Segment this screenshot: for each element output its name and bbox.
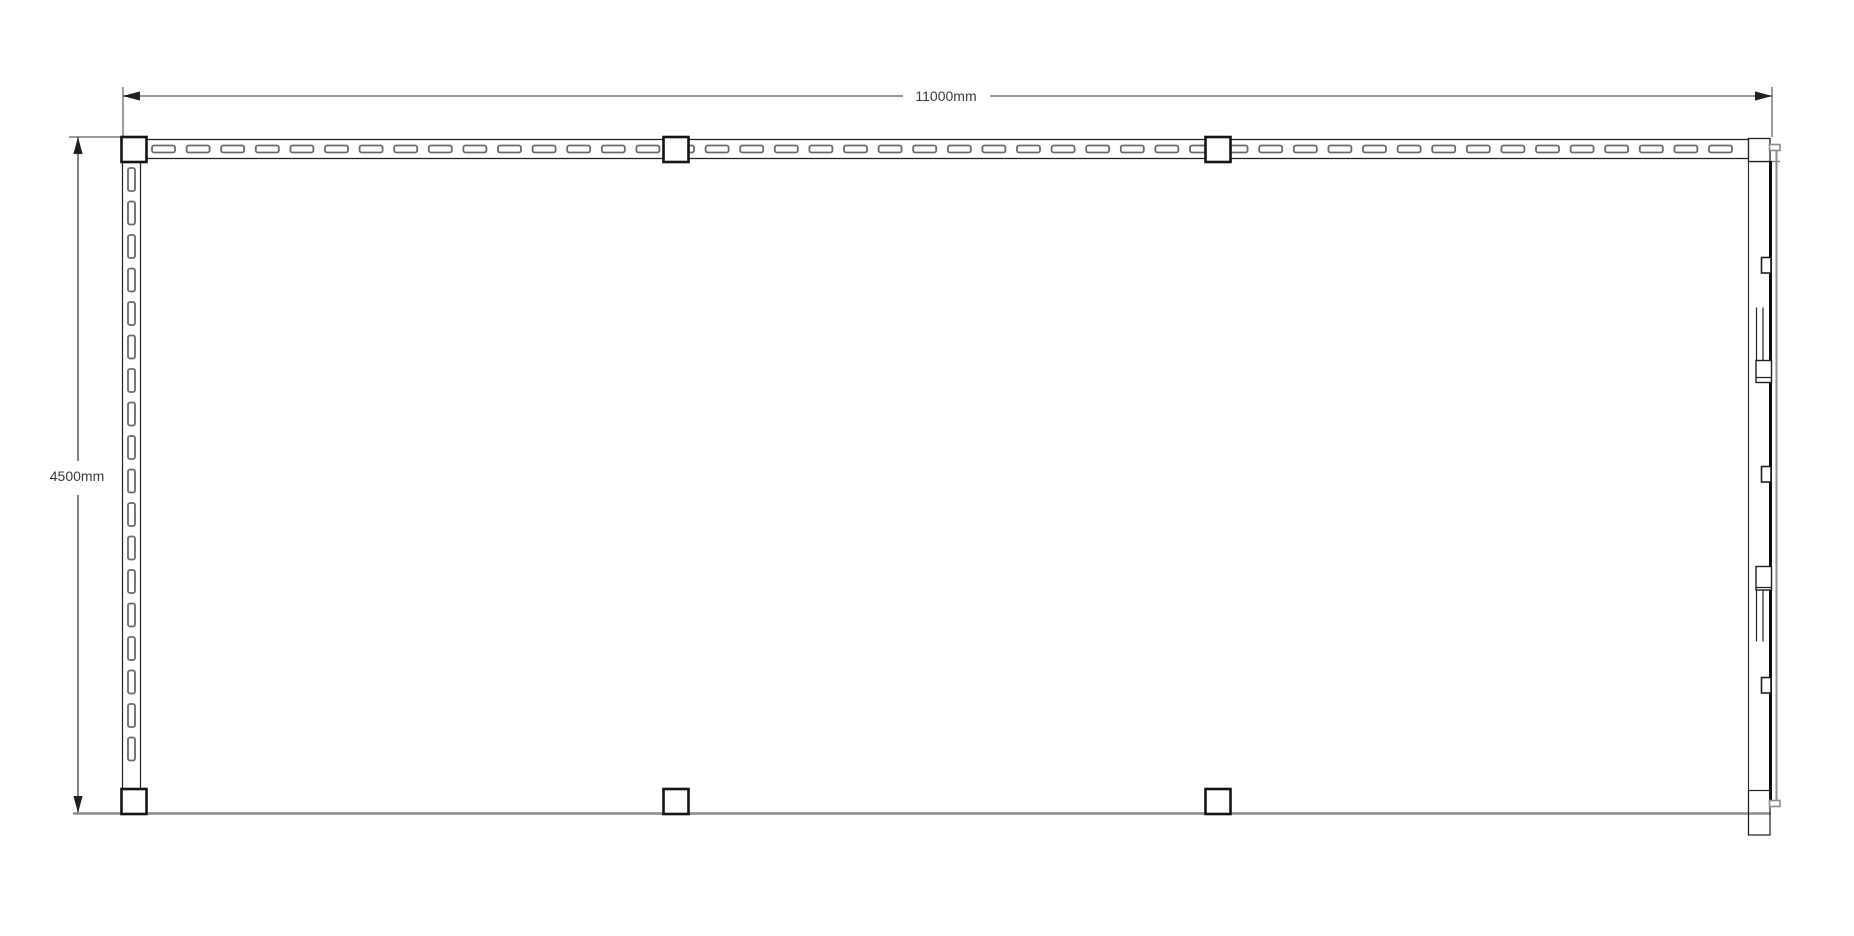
door-handle-icon xyxy=(1756,567,1772,591)
wall-panel-dash xyxy=(1674,146,1697,153)
wall-panel-dash xyxy=(1121,146,1144,153)
wall-panel-dash xyxy=(1052,146,1075,153)
wall-panel-dash xyxy=(533,146,556,153)
wall-panel-dash xyxy=(636,146,659,153)
wall-panel-dash xyxy=(879,146,902,153)
post xyxy=(664,137,689,162)
door-handle-icon xyxy=(1756,361,1772,383)
wall-panel-dash xyxy=(256,146,279,153)
wall-panel-dash xyxy=(1155,146,1178,153)
wall-panel-dash xyxy=(809,146,832,153)
wall-panel-dash xyxy=(1398,146,1421,153)
wall-panel-dash xyxy=(360,146,383,153)
wall-panel-dash xyxy=(290,146,313,153)
wall-panel-dash xyxy=(1640,146,1663,153)
wall-panel-dash xyxy=(602,146,625,153)
post xyxy=(1206,137,1231,162)
post xyxy=(122,137,147,162)
wall-panel-dash xyxy=(128,604,135,627)
arrow-left-icon xyxy=(123,91,140,100)
wall-panel-dash xyxy=(187,146,210,153)
wall-panel-dash xyxy=(128,503,135,526)
wall-panel-dash xyxy=(429,146,452,153)
posts xyxy=(122,137,1231,814)
wall-panel-dash xyxy=(844,146,867,153)
wall-panel-dash xyxy=(128,235,135,258)
floor-plan-drawing: 11000mm 4500mm xyxy=(0,0,1854,936)
arrow-right-icon xyxy=(1755,91,1772,100)
post xyxy=(1206,789,1231,814)
dimension-height: 4500mm xyxy=(50,137,121,813)
wall-panel-dash xyxy=(1709,146,1732,153)
door-roller-icon xyxy=(1762,678,1772,694)
wall-panel-dash xyxy=(1086,146,1109,153)
post xyxy=(122,789,147,814)
wall-panel-dash xyxy=(1363,146,1386,153)
arrow-up-icon xyxy=(73,137,82,154)
wall-panel-dash xyxy=(128,168,135,191)
wall-panel-dash xyxy=(1328,146,1351,153)
wall-panel-dash xyxy=(394,146,417,153)
left-wall xyxy=(123,162,141,789)
wall-panel-dash xyxy=(1432,146,1455,153)
wall-panel-dash xyxy=(128,738,135,761)
wall-panel-dash xyxy=(498,146,521,153)
wall-panel-dash xyxy=(128,704,135,727)
width-dimension-label: 11000mm xyxy=(915,88,976,104)
door-jamb-top xyxy=(1749,139,1771,162)
sliding-door-assembly xyxy=(1748,138,1780,835)
wall-panel-dash xyxy=(128,470,135,493)
wall-panel-dash xyxy=(706,146,729,153)
wall-panel-dash xyxy=(128,403,135,426)
wall-panel-dash xyxy=(128,302,135,325)
post xyxy=(664,789,689,814)
wall-panel-dash xyxy=(982,146,1005,153)
arrow-down-icon xyxy=(73,796,82,813)
wall-panel-dash xyxy=(740,146,763,153)
wall-panel-dash xyxy=(913,146,936,153)
wall-panel-dash xyxy=(463,146,486,153)
wall-panel-dash xyxy=(128,269,135,292)
wall-panel-dash xyxy=(128,436,135,459)
top-wall xyxy=(147,140,1748,159)
height-dimension-label: 4500mm xyxy=(50,468,104,484)
wall-panel-dash xyxy=(567,146,590,153)
door-roller-icon xyxy=(1762,258,1772,274)
wall-panel-dash xyxy=(1017,146,1040,153)
wall-panel-dash xyxy=(1605,146,1628,153)
door-roller-icon xyxy=(1762,467,1772,483)
wall-panel-dash xyxy=(1259,146,1282,153)
wall-panel-dash xyxy=(1294,146,1317,153)
wall-panel-dash xyxy=(1571,146,1594,153)
wall-panel-dash xyxy=(325,146,348,153)
wall-panel-dash xyxy=(948,146,971,153)
wall-panel-dash xyxy=(128,671,135,694)
wall-panel-dash xyxy=(128,637,135,660)
dimension-width: 11000mm xyxy=(123,87,1772,137)
wall-panel-dash xyxy=(1467,146,1490,153)
track-stop-icon xyxy=(1770,801,1781,807)
track-stop-icon xyxy=(1770,145,1781,151)
wall-panel-dash xyxy=(775,146,798,153)
wall-panel-dash xyxy=(1536,146,1559,153)
wall-panel-dash xyxy=(128,202,135,225)
drawing-canvas: 11000mm 4500mm xyxy=(0,0,1854,936)
wall-panel-dash xyxy=(152,146,175,153)
wall-panel-dash xyxy=(221,146,244,153)
wall-panel-dash xyxy=(1501,146,1524,153)
wall-panel-dash xyxy=(128,336,135,359)
wall-panel-dash xyxy=(128,537,135,560)
wall-panel-dash xyxy=(128,570,135,593)
wall-panel-dash xyxy=(128,369,135,392)
